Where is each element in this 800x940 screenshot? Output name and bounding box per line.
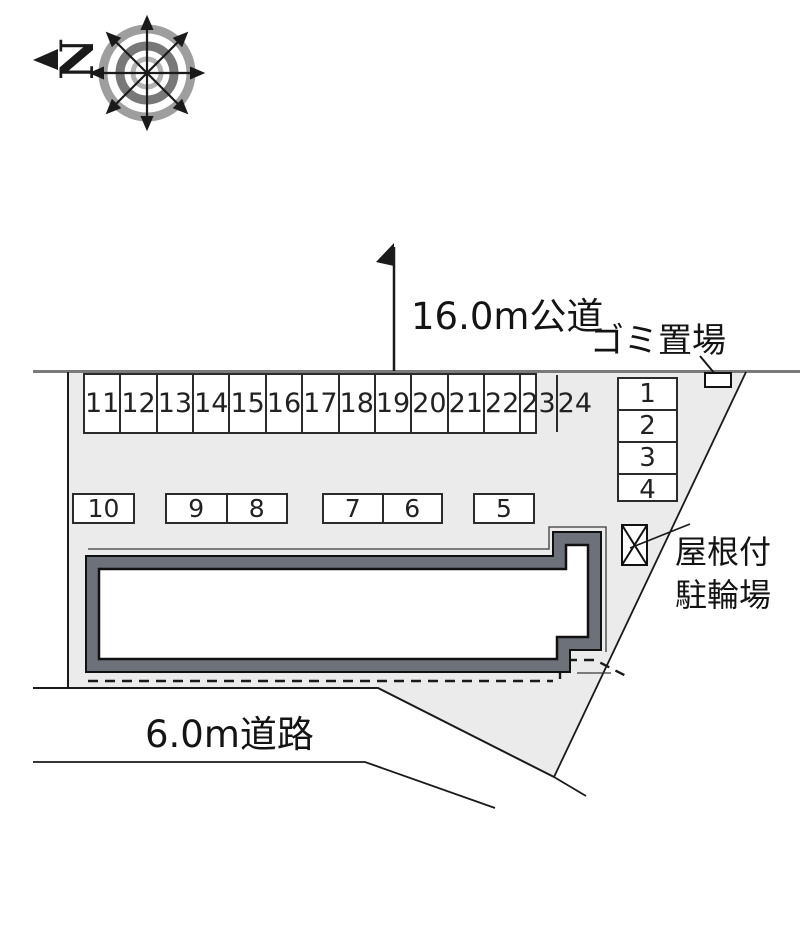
- parking-space: 13: [156, 375, 192, 432]
- garbage-label: ゴミ置場: [590, 313, 726, 362]
- parking-space: 19: [374, 375, 410, 432]
- flag-icon: [376, 243, 394, 371]
- parking-group: 98: [165, 493, 288, 524]
- parking-space: 7: [324, 495, 382, 522]
- road-bottom-label: 6.0m道路: [145, 704, 314, 758]
- parking-group: 1234: [617, 377, 678, 502]
- parking-space: 6: [382, 495, 442, 522]
- parking-space: 15: [228, 375, 264, 432]
- parking-space: 12: [119, 375, 155, 432]
- road-top-label: 16.0m公道: [411, 286, 603, 340]
- parking-space: 24: [556, 375, 592, 432]
- parking-space: 20: [410, 375, 446, 432]
- north-letter: N: [50, 38, 104, 80]
- parking-space: 3: [619, 441, 676, 473]
- parking-space: 21: [447, 375, 483, 432]
- north-indicator: N: [33, 38, 104, 80]
- parking-space: 11: [85, 375, 119, 432]
- parking-group: 10: [72, 493, 135, 524]
- parking-space: 22: [483, 375, 519, 432]
- compass-icon: [92, 18, 202, 128]
- bicycle-parking-label-line2: 駐輪場: [675, 574, 771, 617]
- parking-space: 16: [265, 375, 301, 432]
- parking-space: 1: [619, 379, 676, 409]
- parking-space: 18: [338, 375, 374, 432]
- bicycle-parking-icon: [622, 525, 647, 565]
- parking-space: 9: [167, 495, 226, 522]
- parking-space: 2: [619, 409, 676, 441]
- bottom-road-edge-line: [33, 762, 495, 808]
- parking-space: 10: [74, 495, 133, 522]
- garbage-box: [705, 373, 731, 387]
- road-edge-continuation-line: [554, 777, 586, 796]
- parking-space: 14: [192, 375, 228, 432]
- bicycle-parking-label: 屋根付 駐輪場: [675, 531, 771, 617]
- parking-group: 76: [322, 493, 443, 524]
- bicycle-parking-label-line1: 屋根付: [675, 531, 771, 574]
- site-plan-canvas: N 16.0m公道 ゴミ置場 屋根付 駐輪場 6.0m道路 1112131415…: [0, 0, 800, 940]
- parking-space: 4: [619, 473, 676, 505]
- parking-group: 1112131415161718192021222324: [83, 373, 537, 434]
- parking-space: 5: [475, 495, 533, 522]
- parking-space: 8: [226, 495, 287, 522]
- parking-space: 17: [301, 375, 337, 432]
- site-plan-drawing: N: [0, 0, 800, 940]
- parking-group: 5: [473, 493, 535, 524]
- parking-space: 23: [519, 375, 555, 432]
